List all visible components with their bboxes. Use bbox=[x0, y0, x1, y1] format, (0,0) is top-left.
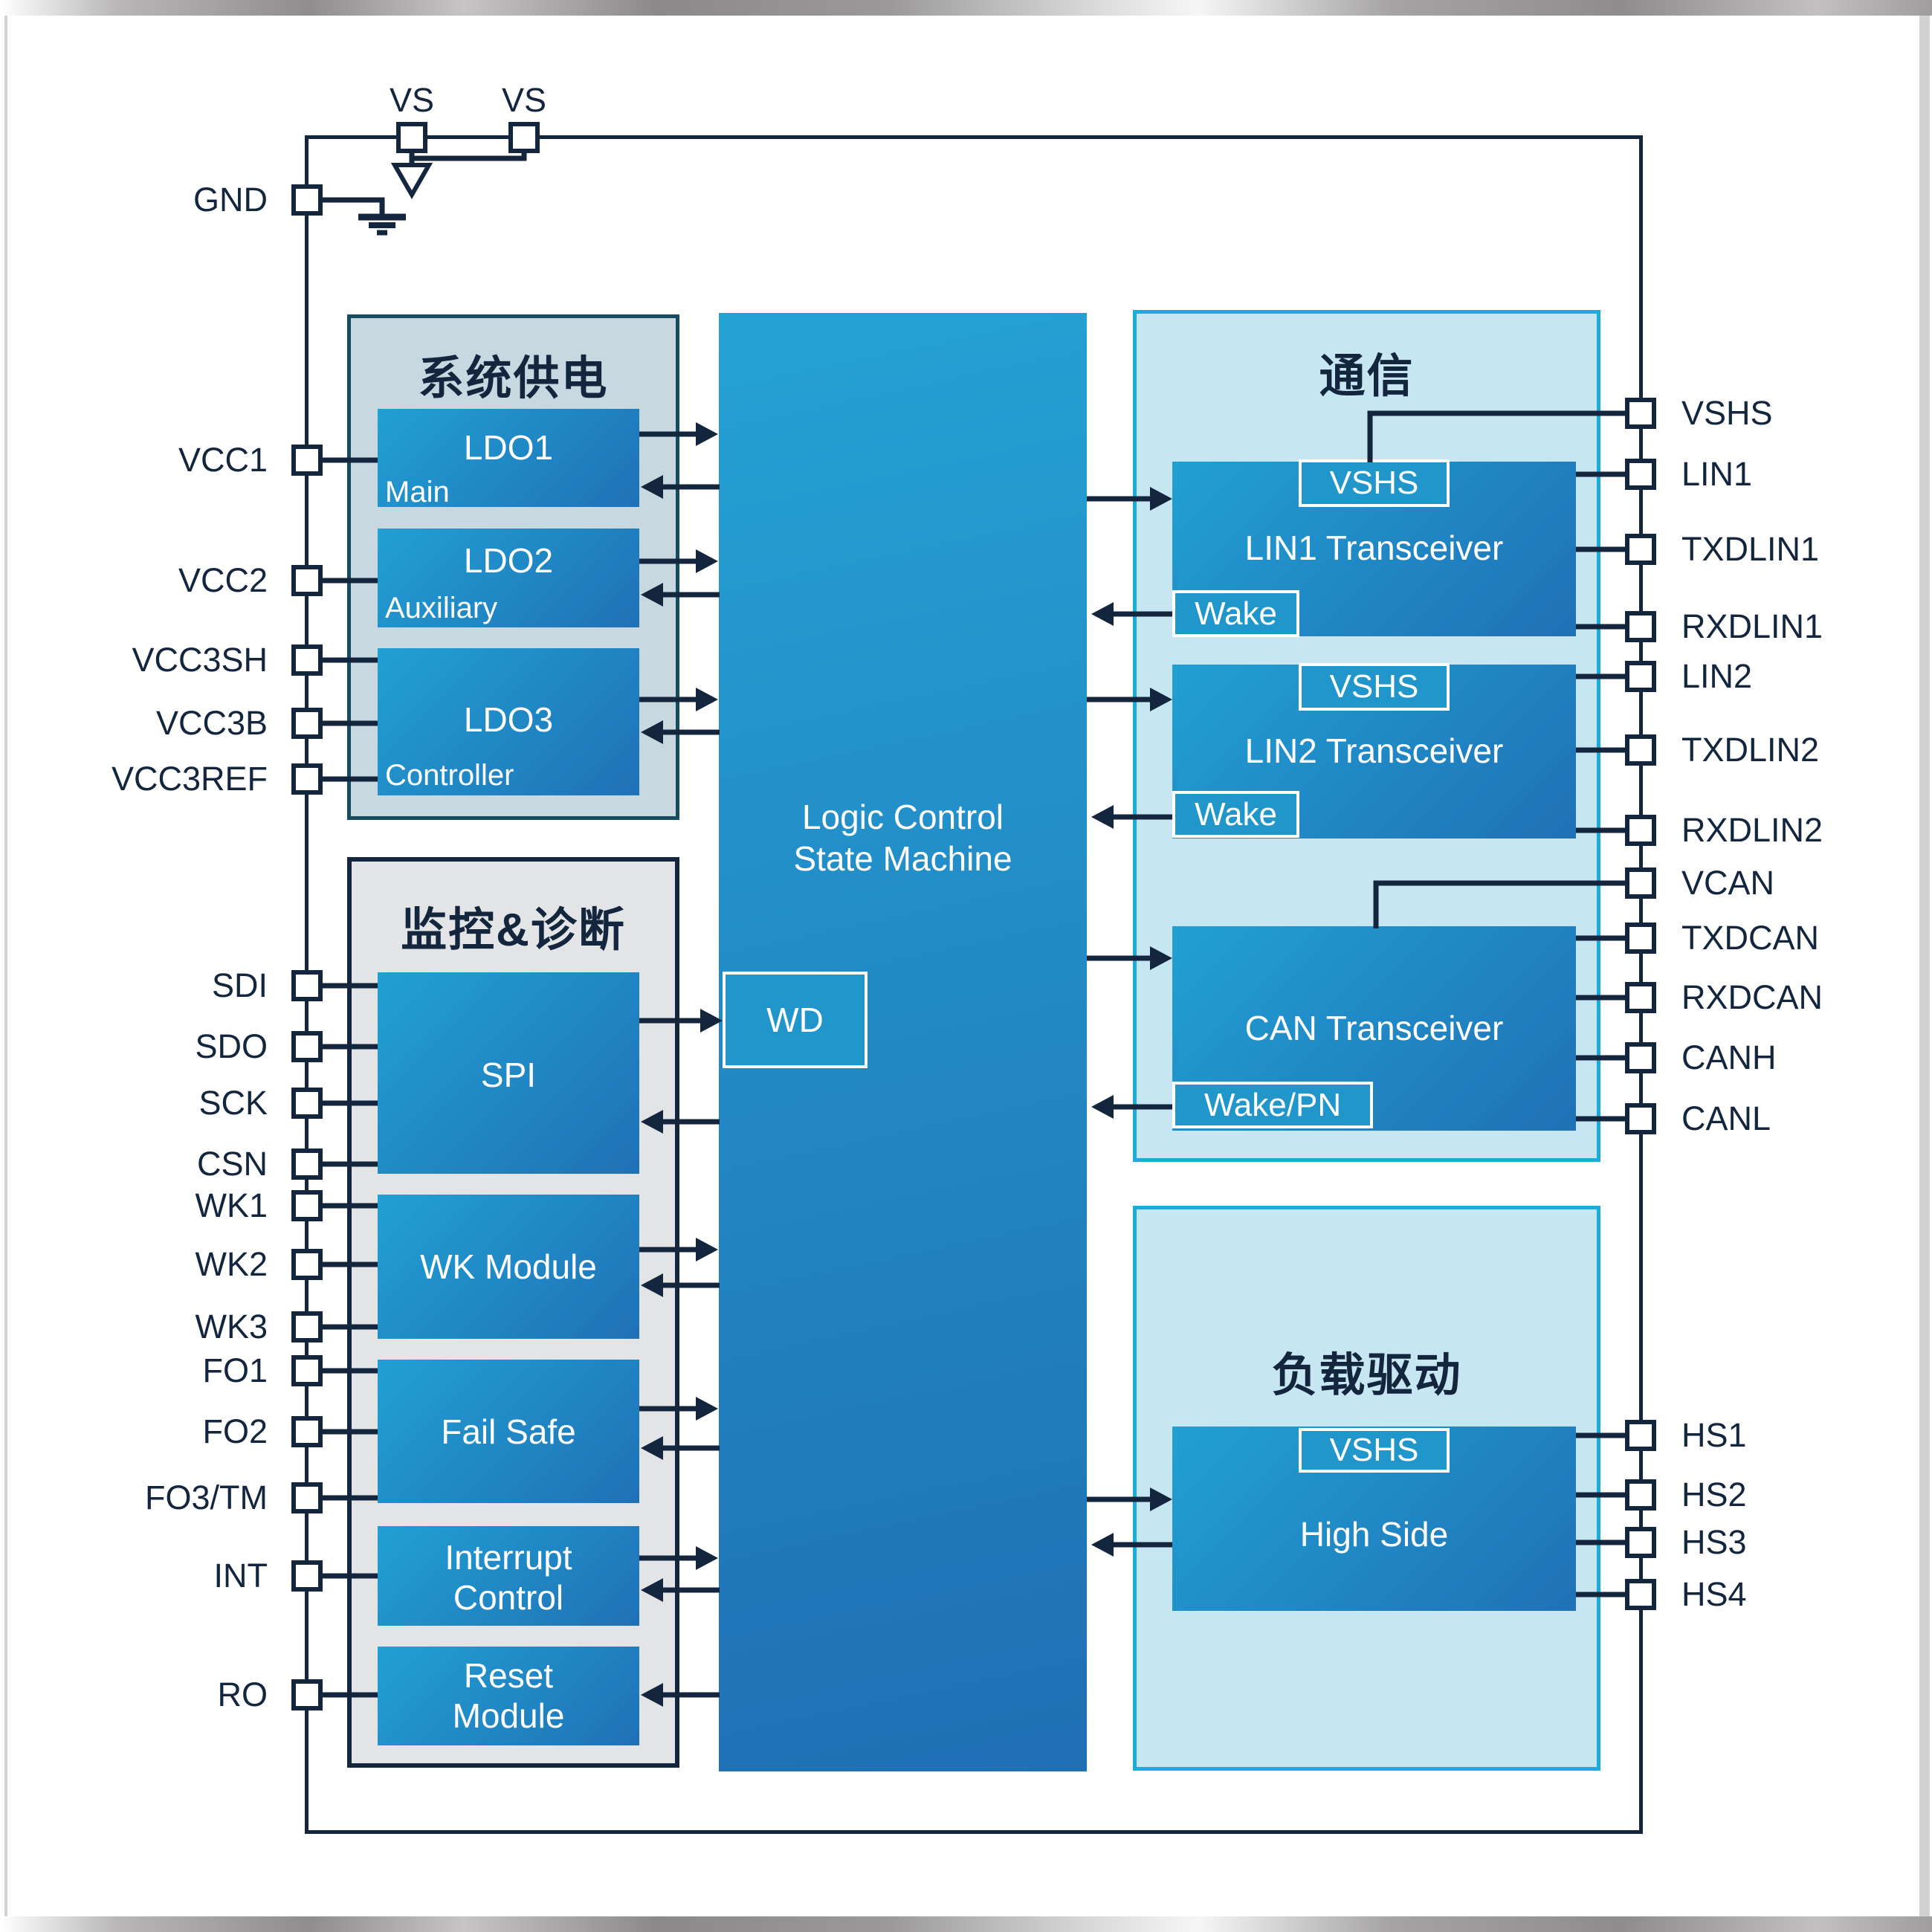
pin-label-fo3-tm: FO3/TM bbox=[145, 1478, 268, 1518]
pin-vcc3ref bbox=[291, 763, 323, 795]
pin-hs2 bbox=[1625, 1479, 1656, 1511]
pin-label-hs4: HS4 bbox=[1681, 1574, 1747, 1615]
block-interrupt-control-label: Interrupt Control bbox=[433, 1537, 584, 1618]
pin-vcc1 bbox=[291, 445, 323, 476]
pin-wk1 bbox=[291, 1190, 323, 1221]
pin-vs-2 bbox=[508, 122, 540, 153]
pin-txdlin2 bbox=[1625, 734, 1656, 766]
pin-label-int: INT bbox=[214, 1556, 268, 1596]
block-lin1-transceiver-label: LIN1 Transceiver bbox=[1172, 528, 1576, 568]
top-metal-bar bbox=[0, 0, 1932, 16]
pin-txdlin1 bbox=[1625, 534, 1656, 565]
pin-wk2 bbox=[291, 1249, 323, 1280]
pin-int bbox=[291, 1560, 323, 1592]
pin-vcc3sh bbox=[291, 644, 323, 676]
pin-label-rxdlin1: RXDLIN1 bbox=[1681, 607, 1823, 647]
pin-sdo bbox=[291, 1031, 323, 1062]
page-frame-left bbox=[4, 16, 7, 1916]
tag-lin1-vshs: VSHS bbox=[1299, 459, 1450, 507]
group-power-title: 系统供电 bbox=[347, 340, 679, 407]
logic-label-line1: Logic Control bbox=[719, 796, 1087, 838]
pin-fo1 bbox=[291, 1355, 323, 1386]
pin-label-hs1: HS1 bbox=[1681, 1415, 1747, 1456]
pin-txdcan bbox=[1625, 923, 1656, 954]
pin-label-txdlin2: TXDLIN2 bbox=[1681, 730, 1819, 770]
logic-state-machine-label: Logic Control State Machine bbox=[719, 796, 1087, 879]
block-lin2-transceiver-label: LIN2 Transceiver bbox=[1172, 731, 1576, 771]
pin-label-sdo: SDO bbox=[195, 1027, 268, 1067]
watchdog-block: WD bbox=[723, 972, 868, 1068]
pin-label-wk2: WK2 bbox=[195, 1244, 268, 1285]
pin-rxdcan bbox=[1625, 982, 1656, 1013]
block-ldo1-label: LDO1 bbox=[378, 427, 639, 468]
tag-lin2-wake: Wake bbox=[1172, 791, 1299, 838]
pin-label-rxdlin2: RXDLIN2 bbox=[1681, 810, 1823, 850]
block-reset-module-label: Reset Module bbox=[445, 1655, 572, 1736]
pin-csn bbox=[291, 1148, 323, 1180]
tag-lin1-wake: Wake bbox=[1172, 590, 1299, 637]
pin-canh bbox=[1625, 1042, 1656, 1073]
block-wk-module-label: WK Module bbox=[378, 1247, 639, 1287]
tag-high-side-vshs: VSHS bbox=[1299, 1428, 1450, 1473]
pin-rxdlin1 bbox=[1625, 611, 1656, 642]
group-monitor-title: 监控&诊断 bbox=[347, 892, 679, 959]
pin-fo2 bbox=[291, 1416, 323, 1447]
pin-label-hs3: HS3 bbox=[1681, 1522, 1747, 1563]
pin-label-vs-1: VS bbox=[367, 80, 456, 120]
block-ldo3-label: LDO3 bbox=[378, 700, 639, 740]
block-fail-safe-label: Fail Safe bbox=[378, 1412, 639, 1452]
pin-label-txdlin1: TXDLIN1 bbox=[1681, 529, 1819, 569]
pin-wk3 bbox=[291, 1311, 323, 1343]
group-load-title: 负载驱动 bbox=[1133, 1337, 1600, 1404]
pin-label-vcc3ref: VCC3REF bbox=[112, 759, 268, 799]
pin-label-vcc2: VCC2 bbox=[178, 560, 268, 601]
pin-hs4 bbox=[1625, 1579, 1656, 1610]
block-ldo2-label: LDO2 bbox=[378, 540, 639, 581]
pin-fo3-tm bbox=[291, 1482, 323, 1513]
pin-label-vcc3b: VCC3B bbox=[156, 703, 268, 743]
block-high-side-label: High Side bbox=[1172, 1514, 1576, 1554]
pin-label-sdi: SDI bbox=[212, 966, 268, 1006]
pin-lin1 bbox=[1625, 459, 1656, 490]
pin-vcc2 bbox=[291, 565, 323, 596]
pin-sdi bbox=[291, 970, 323, 1001]
pin-label-ro: RO bbox=[218, 1675, 268, 1715]
block-spi-label: SPI bbox=[378, 1055, 639, 1095]
group-comm-title: 通信 bbox=[1133, 338, 1600, 405]
pin-label-lin1: LIN1 bbox=[1681, 454, 1752, 494]
pin-vshs bbox=[1625, 398, 1656, 429]
pin-sck bbox=[291, 1088, 323, 1119]
page-frame-right bbox=[1919, 16, 1930, 1916]
pin-label-canl: CANL bbox=[1681, 1099, 1771, 1139]
pin-lin2 bbox=[1625, 661, 1656, 692]
pin-label-sck: SCK bbox=[198, 1083, 268, 1123]
pin-hs3 bbox=[1625, 1527, 1656, 1558]
pin-label-txdcan: TXDCAN bbox=[1681, 918, 1819, 958]
pin-label-fo1: FO1 bbox=[202, 1351, 268, 1391]
pin-label-hs2: HS2 bbox=[1681, 1475, 1747, 1515]
pin-label-vcc3sh: VCC3SH bbox=[132, 640, 268, 680]
block-ldo1-subtitle: Main bbox=[385, 476, 450, 509]
pin-vcc3b bbox=[291, 708, 323, 739]
bottom-metal-bar bbox=[0, 1916, 1932, 1932]
pin-label-vcan: VCAN bbox=[1681, 863, 1774, 903]
pin-label-wk3: WK3 bbox=[195, 1307, 268, 1347]
tag-lin2-vshs: VSHS bbox=[1299, 663, 1450, 711]
logic-label-line2: State Machine bbox=[719, 838, 1087, 879]
pin-label-wk1: WK1 bbox=[195, 1186, 268, 1226]
pin-canl bbox=[1625, 1103, 1656, 1134]
pin-label-lin2: LIN2 bbox=[1681, 656, 1752, 697]
tag-can-wake-pn: Wake/PN bbox=[1172, 1082, 1373, 1128]
block-ldo2-subtitle: Auxiliary bbox=[385, 592, 497, 625]
pin-vcan bbox=[1625, 868, 1656, 899]
pin-vs-1 bbox=[396, 122, 427, 153]
block-can-transceiver-label: CAN Transceiver bbox=[1172, 1008, 1576, 1048]
pin-label-csn: CSN bbox=[197, 1144, 268, 1184]
pin-label-fo2: FO2 bbox=[202, 1412, 268, 1452]
pin-rxdlin2 bbox=[1625, 815, 1656, 846]
pin-ro bbox=[291, 1679, 323, 1710]
block-ldo3-subtitle: Controller bbox=[385, 759, 514, 792]
pin-label-vcc1: VCC1 bbox=[178, 440, 268, 480]
pin-hs1 bbox=[1625, 1420, 1656, 1451]
pin-label-rxdcan: RXDCAN bbox=[1681, 978, 1823, 1018]
pin-label-canh: CANH bbox=[1681, 1038, 1777, 1078]
pin-label-vs-2: VS bbox=[479, 80, 569, 120]
pin-gnd bbox=[291, 184, 323, 216]
pin-label-vshs: VSHS bbox=[1681, 393, 1773, 433]
pin-label-gnd: GND bbox=[193, 180, 268, 220]
